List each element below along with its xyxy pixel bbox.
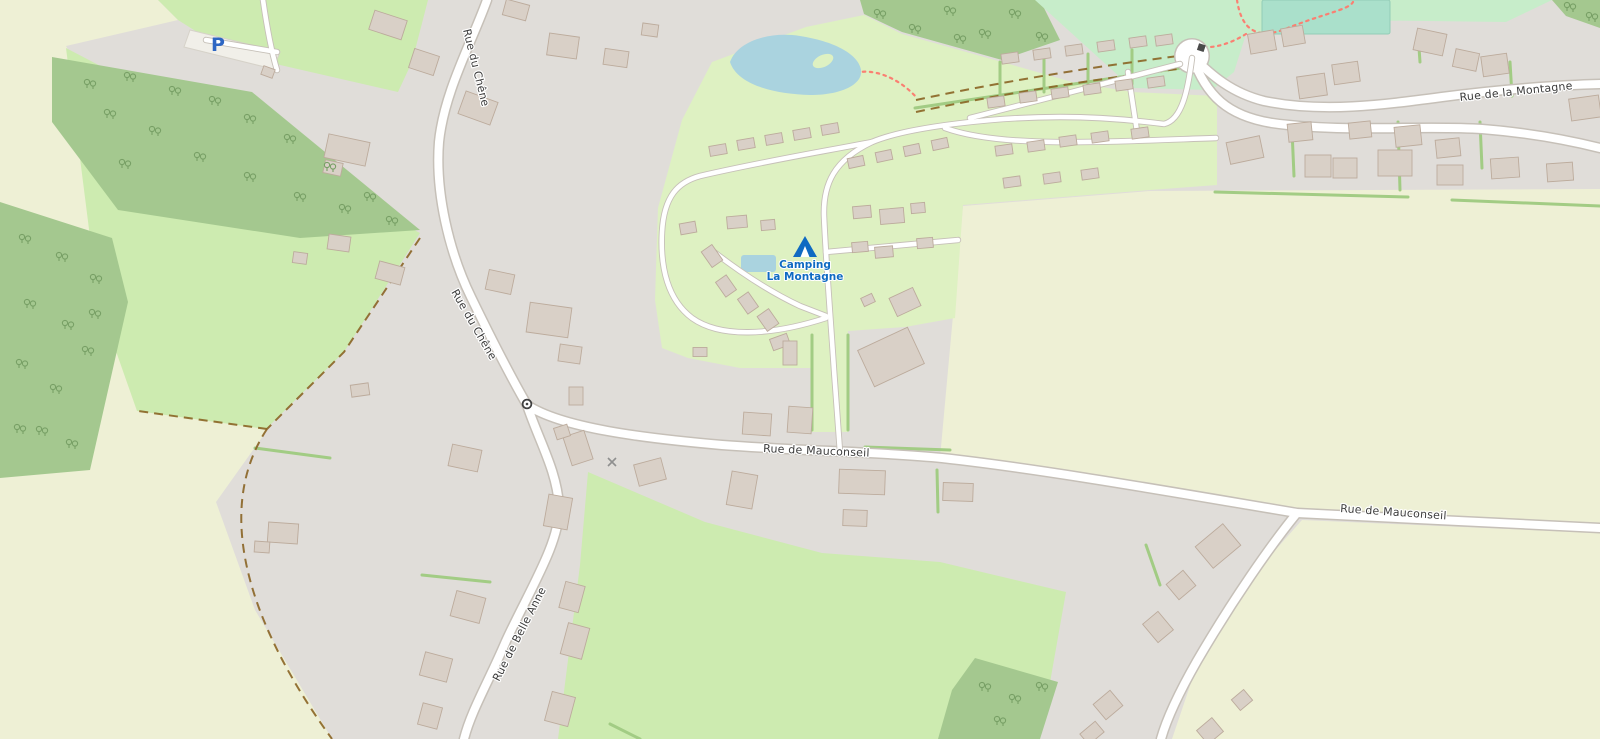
caravan-pitch [1059, 135, 1077, 147]
caravan-pitch [1065, 44, 1083, 56]
building [1297, 73, 1328, 99]
building [1281, 25, 1306, 47]
camping-label-line2: La Montagne [767, 271, 844, 283]
building [1287, 122, 1313, 142]
building [943, 482, 974, 501]
building [569, 387, 583, 405]
building [693, 348, 707, 357]
building [879, 207, 904, 224]
caravan-pitch [1147, 76, 1165, 88]
caravan-pitch [1097, 40, 1115, 52]
building [1437, 165, 1463, 185]
caravan-pitch [1091, 131, 1109, 143]
building [1378, 150, 1412, 176]
building [783, 341, 797, 365]
building [853, 205, 872, 219]
building [787, 406, 813, 434]
caravan-pitch [1027, 140, 1045, 152]
building [603, 48, 629, 67]
caravan-pitch [1155, 34, 1173, 46]
caravan-pitch [1033, 48, 1051, 60]
building [1305, 155, 1331, 177]
building [350, 383, 369, 397]
building [911, 202, 926, 213]
building [726, 471, 758, 509]
caravan-pitch [1051, 87, 1069, 99]
building [1333, 158, 1357, 178]
caravan-pitch [1001, 52, 1019, 64]
building [679, 221, 697, 235]
caravan-pitch [987, 96, 1005, 108]
caravan-pitch [1083, 83, 1101, 95]
building [267, 522, 298, 544]
building [742, 412, 771, 436]
building [1569, 95, 1600, 121]
caravan-pitch [1131, 127, 1149, 139]
building [875, 246, 894, 259]
building [1490, 157, 1519, 179]
building [852, 241, 869, 252]
hedge-line [937, 470, 938, 512]
map-canvas[interactable]: P Rue du Chêne Rue du Chêne Rue de Mauco… [0, 0, 1600, 739]
caravan-pitch [1081, 168, 1099, 180]
caravan-pitch [1003, 176, 1021, 188]
caravan-pitch [1115, 79, 1133, 91]
caravan-pitch [1019, 91, 1037, 103]
building [641, 23, 659, 37]
building [327, 234, 351, 252]
building [558, 344, 582, 364]
caravan-pitch [1129, 36, 1147, 48]
building [917, 237, 934, 248]
building [526, 302, 572, 338]
building [1435, 138, 1461, 158]
caravan-pitch [995, 144, 1013, 156]
building [1247, 30, 1276, 54]
parking-p-icon: P [211, 34, 225, 56]
building [254, 541, 270, 553]
building [843, 510, 868, 527]
swimming-pool [741, 255, 776, 272]
building [1332, 61, 1361, 84]
building [1546, 162, 1573, 182]
building [761, 219, 776, 230]
building [839, 469, 886, 495]
caravan-pitch [1043, 172, 1061, 184]
building [727, 215, 748, 229]
building [1348, 121, 1372, 139]
building [1394, 125, 1422, 148]
building [292, 252, 307, 265]
building [543, 494, 572, 530]
camping-label-line1: Camping [779, 259, 831, 271]
building [547, 33, 580, 59]
mini-roundabout-icon [523, 400, 532, 409]
building [1481, 53, 1510, 76]
